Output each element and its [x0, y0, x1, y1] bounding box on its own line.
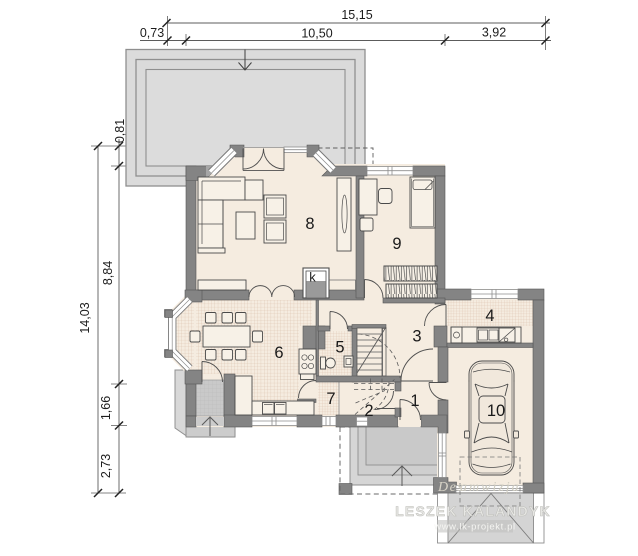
svg-text:15,15: 15,15 [341, 8, 372, 22]
svg-text:0,81: 0,81 [113, 119, 127, 143]
svg-text:1: 1 [410, 392, 419, 410]
svg-text:7: 7 [326, 390, 335, 408]
svg-text:1,66: 1,66 [99, 396, 113, 420]
svg-text:9: 9 [392, 235, 401, 253]
svg-text:0,73: 0,73 [140, 26, 164, 40]
svg-text:8,84: 8,84 [101, 261, 115, 285]
svg-text:2,73: 2,73 [99, 454, 113, 478]
svg-text:k: k [309, 270, 316, 285]
svg-text:2: 2 [364, 402, 373, 420]
svg-text:14,03: 14,03 [78, 302, 92, 333]
svg-text:LESZEK KALANDYK: LESZEK KALANDYK [395, 503, 551, 519]
svg-text:3: 3 [412, 328, 421, 346]
svg-text:4: 4 [485, 307, 494, 325]
svg-text:5: 5 [335, 339, 344, 357]
svg-text:3,92: 3,92 [482, 26, 506, 40]
svg-text:10,50: 10,50 [301, 27, 332, 41]
svg-text:8: 8 [305, 215, 314, 233]
svg-text:10: 10 [487, 402, 505, 420]
svg-text:6: 6 [274, 344, 283, 362]
svg-text:amwizja: amwizja [460, 480, 521, 495]
svg-text:www.lk-projekt.pl: www.lk-projekt.pl [433, 522, 515, 533]
